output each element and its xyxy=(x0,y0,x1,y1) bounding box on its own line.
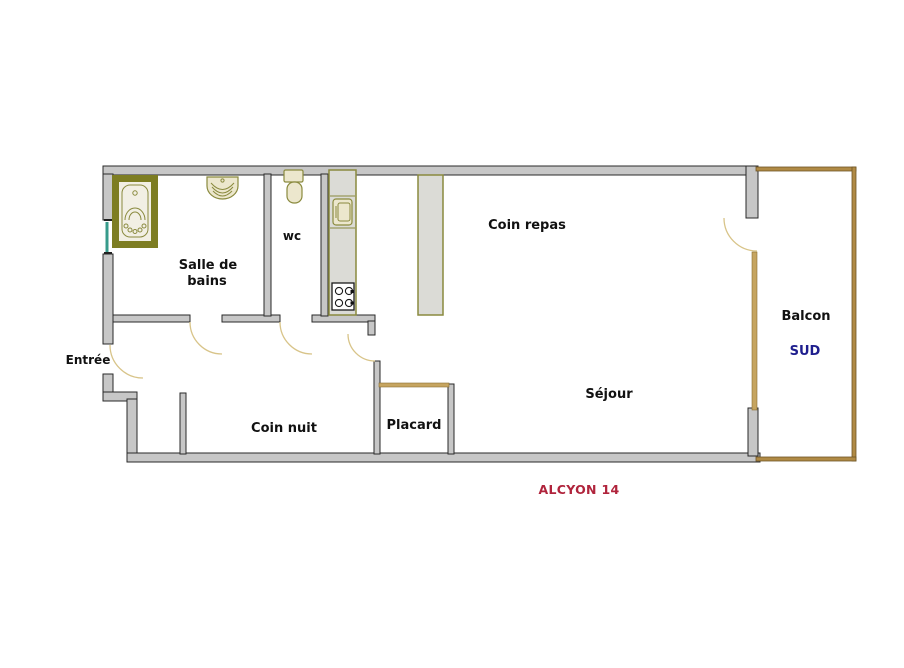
wall-west-lower xyxy=(103,374,113,394)
hall-wall-stub xyxy=(368,321,375,335)
stove-knob-1 xyxy=(351,290,354,293)
window-west-cap-top xyxy=(104,219,112,221)
washbasin xyxy=(207,177,238,199)
placard-wall-left xyxy=(374,361,380,454)
wall-west-entry xyxy=(127,399,137,459)
door-entree-arc xyxy=(110,345,143,378)
label-salle-de-bains-line1: Salle de xyxy=(179,258,238,273)
label-entree: Entrée xyxy=(66,353,111,367)
toilet xyxy=(284,170,303,203)
stove-knob-2 xyxy=(351,302,354,305)
label-sejour: Séjour xyxy=(585,387,633,402)
bathtub xyxy=(112,175,158,248)
window-west xyxy=(104,219,112,254)
label-coin-repas: Coin repas xyxy=(488,218,566,233)
placard-wall-right xyxy=(448,384,454,454)
wall-east-lower xyxy=(748,408,758,456)
label-placard: Placard xyxy=(387,418,442,433)
door-wc-arc xyxy=(280,322,312,354)
label-wc: wc xyxy=(283,229,301,243)
dining-partition xyxy=(418,175,443,315)
wc-kitchen-divider xyxy=(321,174,328,316)
window-west-cap-bottom xyxy=(104,252,112,254)
hall-wall-a xyxy=(113,315,190,322)
toilet-tank xyxy=(284,170,303,182)
window-south-glass xyxy=(752,252,757,410)
wall-bottom xyxy=(127,453,760,462)
stove-burner-1 xyxy=(335,287,342,294)
plan-title: ALCYON 14 xyxy=(539,482,620,497)
door-coin-nuit-arc xyxy=(348,334,375,361)
stove-burner-3 xyxy=(335,299,342,306)
placard-front xyxy=(379,383,449,387)
floor-plan-page: Salle de bains wc Coin repas Entrée Coin… xyxy=(0,0,904,668)
door-balcony-arc xyxy=(724,218,757,251)
floor-plan: Salle de bains wc Coin repas Entrée Coin… xyxy=(0,0,904,668)
kitchen-counter xyxy=(329,170,356,315)
wall-top xyxy=(103,166,758,175)
bath-wc-divider xyxy=(264,174,271,316)
interior-walls xyxy=(113,174,454,454)
entree-coin-nuit-stub xyxy=(180,393,186,454)
label-balcon: Balcon xyxy=(781,309,830,324)
door-bathroom-arc xyxy=(190,322,222,354)
toilet-bowl xyxy=(287,182,302,203)
label-coin-nuit: Coin nuit xyxy=(251,421,317,436)
wall-west-upper xyxy=(103,174,113,220)
balcony-edge-top xyxy=(756,167,856,171)
wall-east-upper xyxy=(746,166,758,218)
balcony-edge-bottom xyxy=(756,457,856,461)
wall-west-mid xyxy=(103,254,113,344)
label-salle-de-bains-line2: bains xyxy=(187,274,227,289)
balcony-edge-right xyxy=(852,167,856,461)
label-sud: SUD xyxy=(790,344,821,359)
